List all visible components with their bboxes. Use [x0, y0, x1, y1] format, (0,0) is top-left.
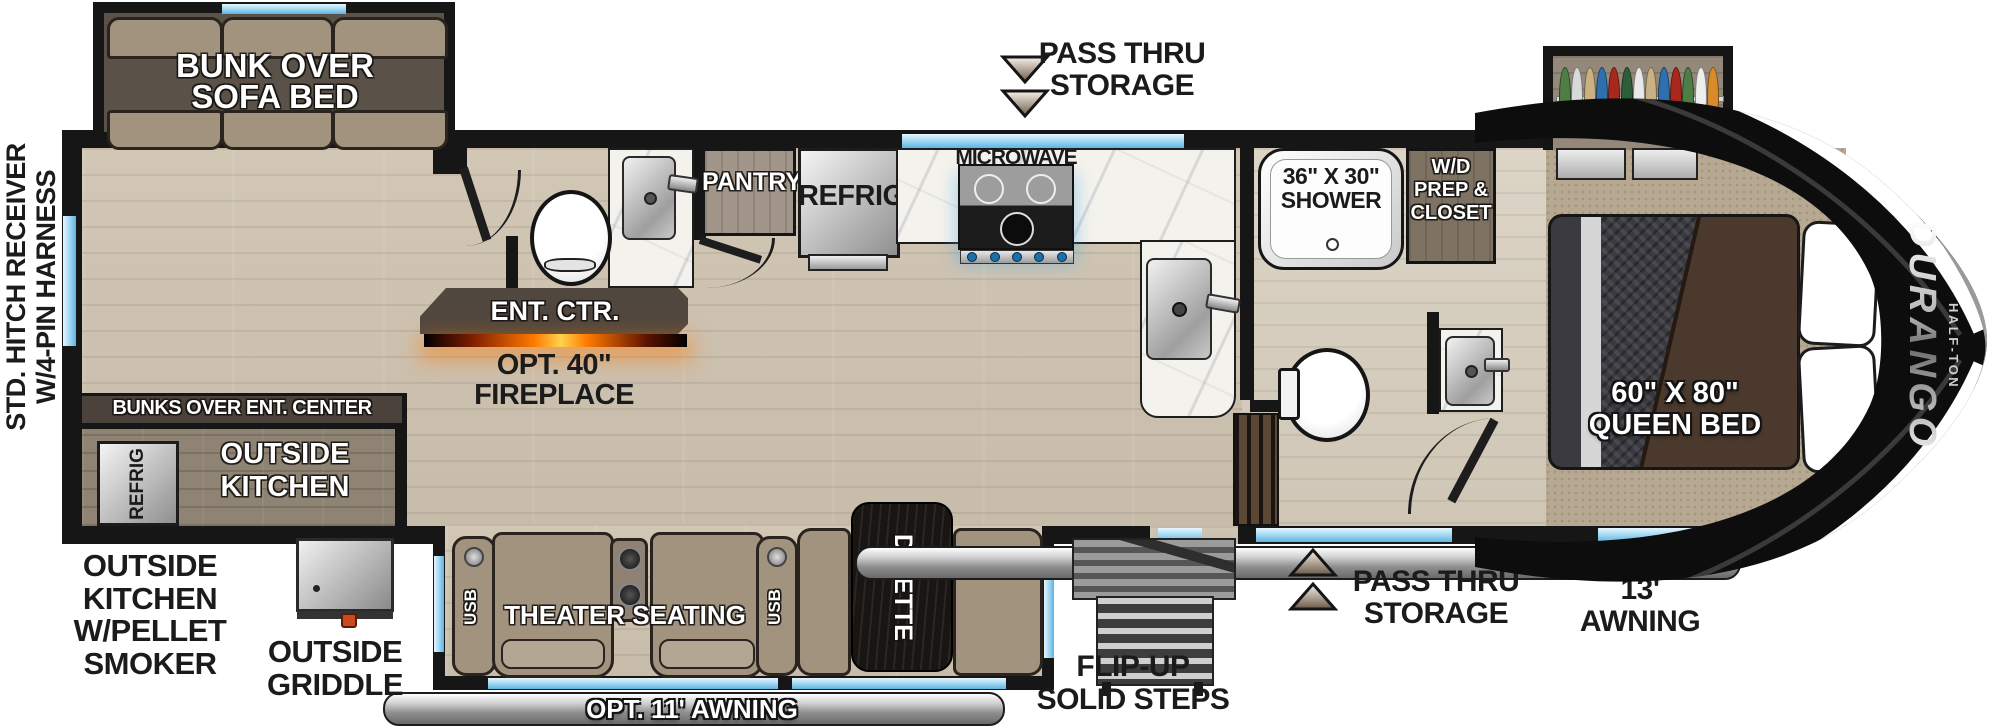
griddle-knob-icon: [341, 613, 357, 628]
shower-drain-icon: [1326, 238, 1339, 251]
kitchen-sink: [1146, 258, 1212, 360]
refrig-drawer: [808, 254, 888, 271]
outside-refrig: REFRIG: [97, 441, 179, 526]
flip-up-steps-label: FLIP-UP SOLID STEPS: [1008, 650, 1258, 716]
bath1-sink: [622, 156, 676, 240]
sofa-seat-cushion: [107, 110, 223, 150]
outside-griddle-label: OUTSIDE GRIDDLE: [240, 636, 430, 701]
hitch-label: STD. HITCH RECEIVER W/4-PIN HARNESS: [2, 97, 66, 477]
queen-bed-label: 60" X 80" QUEEN BED: [1556, 378, 1794, 442]
cupholder-icon: [767, 547, 787, 567]
dinette-bench: [797, 528, 851, 676]
bunk-slide-window: [222, 4, 346, 14]
kitchen-bath-wall: [1240, 148, 1254, 400]
cooktop-knobs: [960, 250, 1074, 264]
outside-kitchen-bay-label: OUTSIDE KITCHEN: [175, 438, 395, 505]
shower-label: 36" X 30" SHOWER: [1258, 164, 1404, 212]
cupholder-icon: [464, 547, 484, 567]
outside-kitchen-label: OUTSIDE KITCHEN W/PELLET SMOKER: [30, 550, 270, 680]
fireplace-strip: [424, 334, 687, 347]
dinette-table: DINETTE: [851, 502, 953, 672]
interior-steps: [1233, 413, 1279, 526]
vanity-wall: [1427, 312, 1439, 414]
brand-model-label: DURANGO: [1901, 220, 1943, 451]
slide-bottom-window: [792, 678, 1006, 689]
outside-griddle-icon: [296, 538, 394, 612]
awning-11-label: OPT. 11' AWNING: [383, 694, 1001, 725]
slide-bottom-window: [488, 678, 778, 689]
bath2-toilet-tank: [1278, 368, 1300, 420]
bunks-over-ent-label: BUNKS OVER ENT. CENTER: [82, 397, 402, 420]
cooktop-icon: [958, 164, 1074, 250]
passthru-wall-window: [1256, 528, 1452, 542]
bath1-toilet-seat: [544, 258, 596, 272]
microwave-label: MICROWAVE: [946, 146, 1086, 170]
slide-left-window: [434, 556, 444, 652]
cupholder-icon: [618, 547, 642, 571]
brand-trim-label: HALF-TON: [1946, 303, 1961, 389]
fireplace-label: OPT. 40" FIREPLACE: [420, 350, 688, 411]
pass-thru-up-arrow-icon: [1288, 546, 1338, 612]
sofa-seat-cushion: [221, 110, 334, 150]
bunk-sofa-label: BUNK OVER SOFA BED: [110, 50, 440, 113]
outside-refrig-label: REFRIG: [127, 448, 149, 520]
theater-seating-label: THEATER SEATING: [462, 600, 788, 631]
pantry-label: PANTRY: [702, 168, 796, 197]
pass-thru-top-label: PASS THRU STORAGE: [1032, 38, 1212, 101]
front-cap: DURANGO HALF-TON: [1460, 85, 1999, 610]
sofa-seat-cushion: [332, 110, 448, 150]
rv-floorplan: BUNK OVER SOFA BED PANTRY REFRIG MICROWA…: [0, 0, 1999, 728]
ent-center-label: ENT. CTR.: [430, 296, 680, 327]
bath-lower-stub: [506, 236, 518, 292]
refrig-label: REFRIG: [798, 180, 894, 213]
